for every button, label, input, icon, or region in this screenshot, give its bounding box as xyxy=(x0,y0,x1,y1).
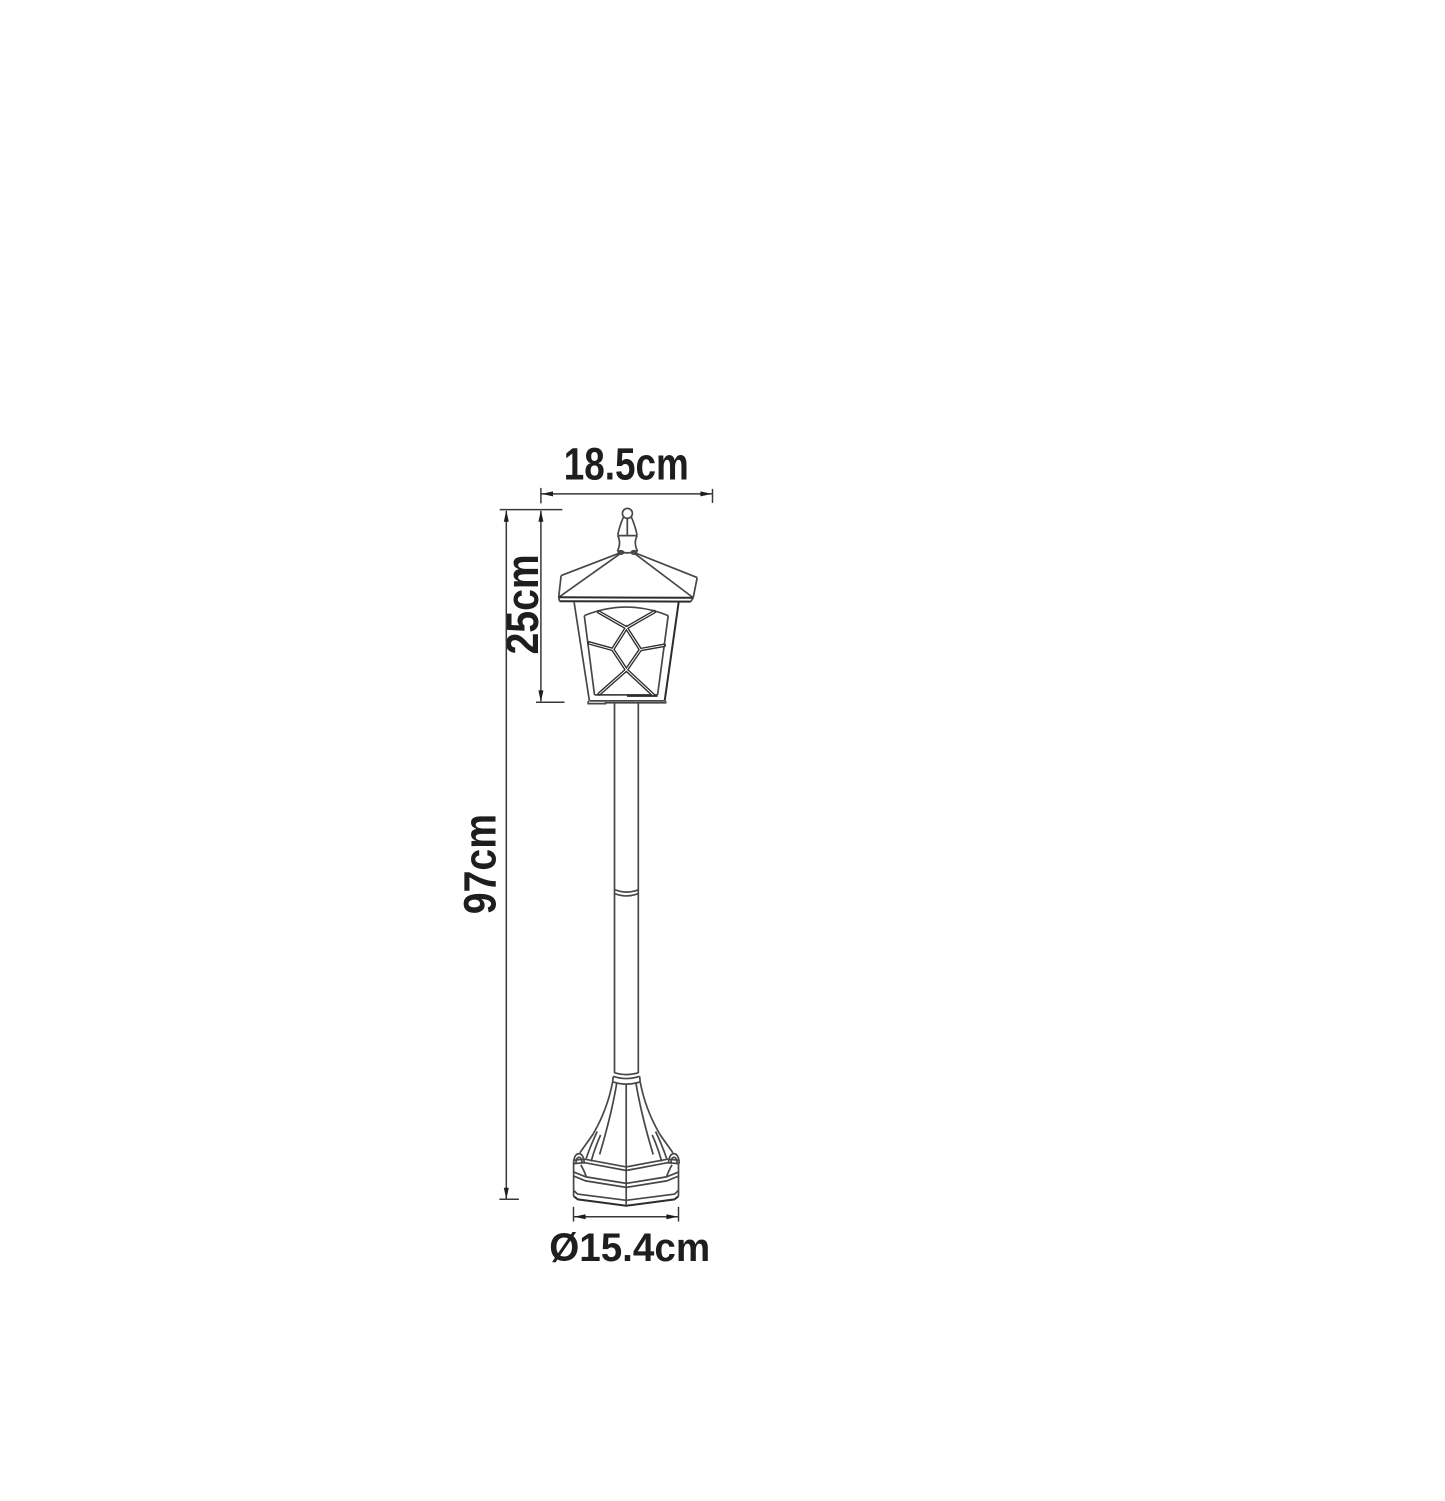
svg-text:97cm: 97cm xyxy=(455,814,506,914)
svg-text:Ø15.4cm: Ø15.4cm xyxy=(549,1226,710,1270)
svg-text:18.5cm: 18.5cm xyxy=(564,439,689,490)
